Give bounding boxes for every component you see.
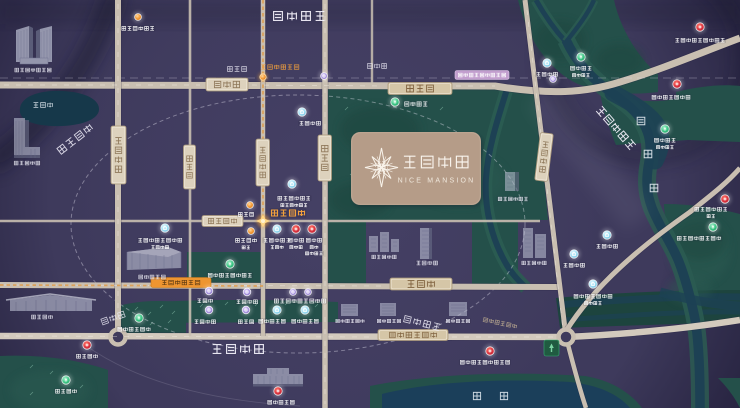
svg-text:NICE MANSION: NICE MANSION: [398, 178, 476, 185]
